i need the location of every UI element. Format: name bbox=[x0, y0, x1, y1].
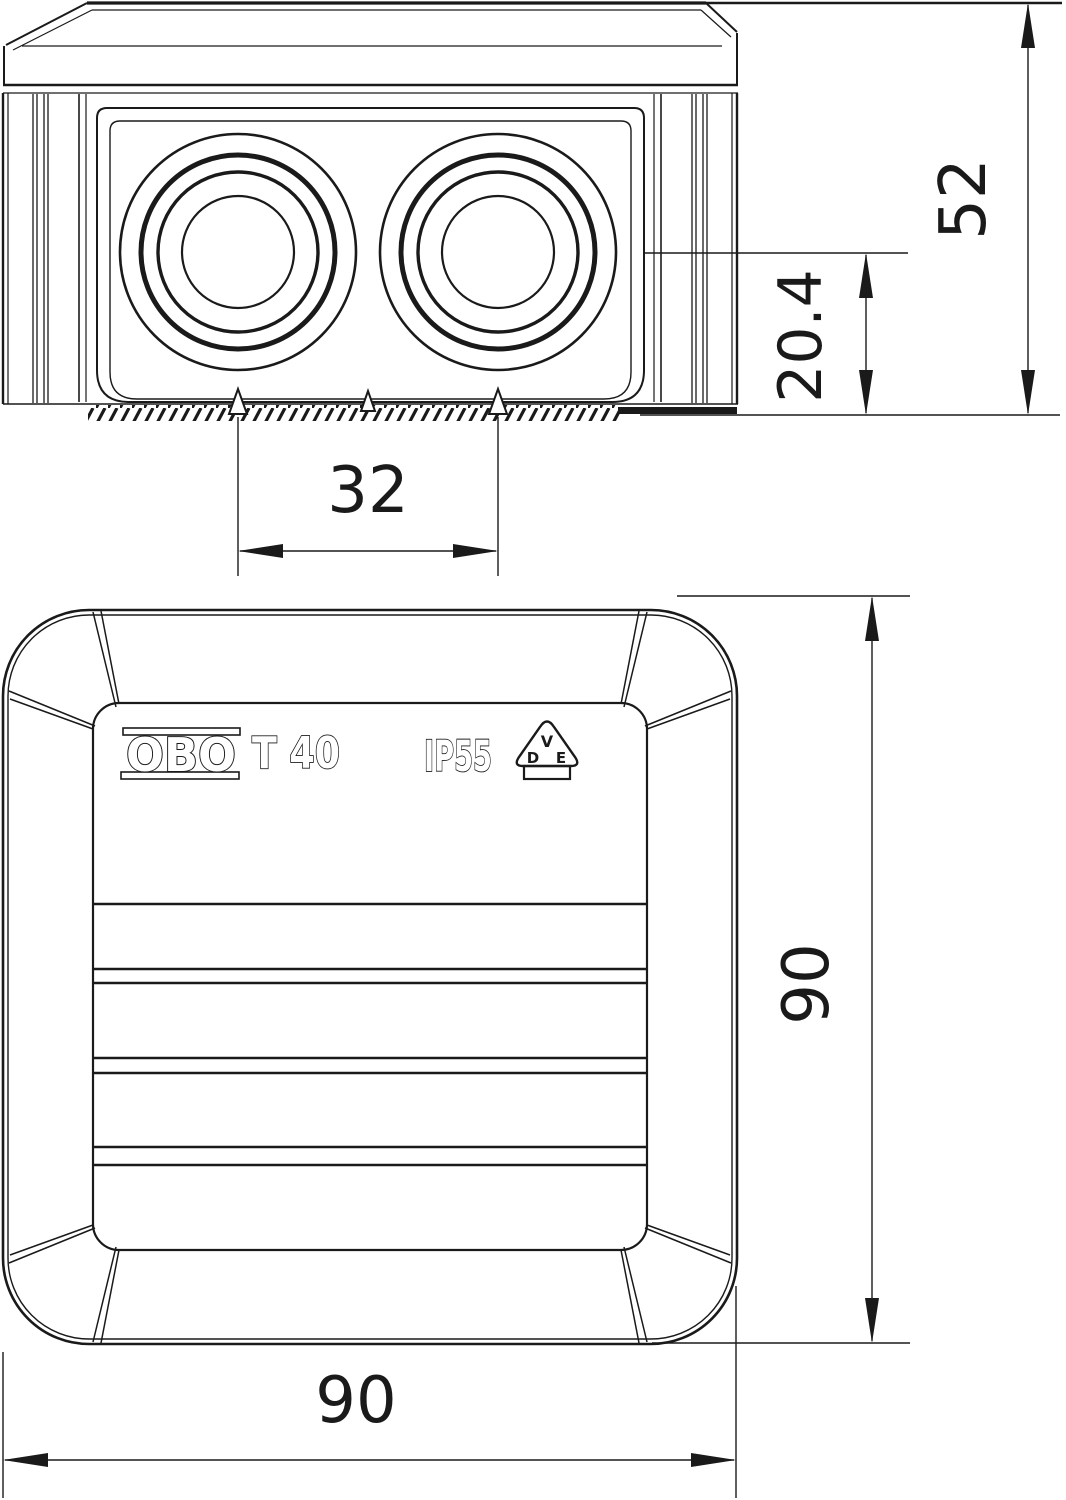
dim-label-entry-center-height: 20.4 bbox=[766, 269, 836, 403]
drawing-page: 52 20.4 32 bbox=[0, 0, 1066, 1500]
vde-letter-v: V bbox=[541, 732, 554, 751]
dim-label-plan-width: 90 bbox=[315, 1364, 396, 1438]
obo-logo-text: OBO bbox=[126, 728, 236, 782]
vde-letter-e: E bbox=[556, 749, 566, 767]
obo-logo: OBO bbox=[121, 728, 240, 782]
ip-rating-label: IP55 bbox=[424, 732, 492, 782]
technical-drawing: 52 20.4 32 bbox=[0, 0, 1066, 1500]
dim-label-total-height: 52 bbox=[927, 158, 1001, 239]
model-label: T 40 bbox=[252, 728, 340, 779]
vde-letter-d: D bbox=[527, 749, 539, 767]
dim-label-plan-height: 90 bbox=[770, 943, 844, 1024]
dim-label-entry-spacing: 32 bbox=[327, 454, 408, 528]
